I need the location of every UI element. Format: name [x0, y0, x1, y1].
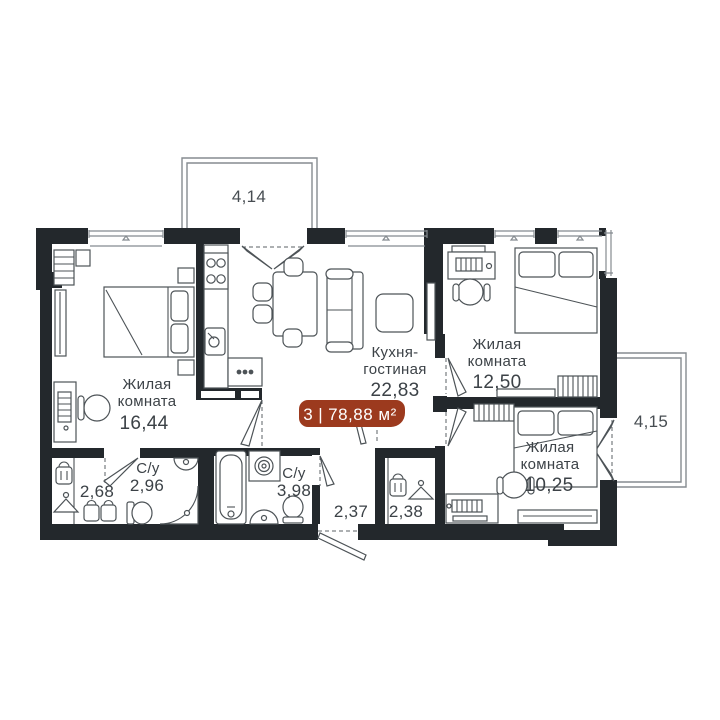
chair	[457, 279, 483, 305]
sofa-armrest	[326, 269, 353, 279]
basket	[56, 467, 72, 484]
bedroom2-area: 12,50	[472, 372, 521, 393]
dot	[237, 370, 241, 374]
burner	[217, 259, 225, 267]
badge-room-count: 3	[303, 405, 313, 424]
basket	[101, 505, 116, 521]
dining-table	[273, 272, 317, 336]
pillow	[171, 291, 188, 321]
chair-arm	[484, 284, 490, 301]
monitor	[452, 246, 485, 252]
shelf-rack	[54, 250, 74, 285]
bedroom2-name-2: комната	[468, 353, 527, 370]
bedroom1-area: 16,44	[119, 413, 168, 434]
pillow	[519, 252, 555, 277]
chair	[84, 395, 110, 421]
toilet-bowl	[132, 502, 152, 524]
bedroom3-name-1: Жилая	[526, 439, 575, 456]
bath1-area: 2,96	[130, 476, 164, 495]
bathtub-inner	[220, 455, 242, 519]
burner	[217, 275, 225, 283]
chair-arm	[497, 477, 503, 494]
balcony-right-area: 4,15	[634, 412, 668, 431]
stub-inset-1	[201, 391, 235, 398]
window-bedroom2	[495, 230, 534, 240]
wardrobe-area: 2,68	[80, 482, 114, 501]
bedroom3-area: 10,25	[524, 475, 573, 496]
bedroom2-furniture	[448, 246, 597, 397]
pillow	[559, 252, 593, 277]
sofa-armrest	[326, 342, 353, 352]
closet-area: 2,38	[389, 502, 423, 521]
ottoman	[376, 294, 413, 332]
pillow	[518, 411, 554, 435]
basket	[390, 479, 406, 496]
balcony-right-door-leaf-bottom	[596, 452, 614, 481]
badge-total-area: 78,88 м²	[328, 405, 397, 424]
bedroom1-name-1: Жилая	[123, 376, 172, 393]
keyboard	[456, 258, 482, 271]
nightstand	[178, 360, 194, 375]
mouse	[64, 426, 68, 430]
faucet	[184, 460, 189, 465]
area-badge: 3|78,88 м²	[299, 400, 405, 427]
dining-chair	[253, 283, 272, 301]
bedroom3-name-2: комната	[521, 456, 580, 473]
hallway-area: 2,37	[334, 502, 368, 521]
chair	[501, 472, 527, 498]
floor-plan-canvas: Жилая комната 16,44 Кухня- гостиная 22,8…	[0, 0, 720, 720]
bath1-name: С/у	[136, 460, 160, 477]
stub-inset-2	[241, 391, 259, 398]
dining-chair	[284, 258, 303, 276]
burner	[207, 275, 215, 283]
hanger-hook	[419, 481, 424, 486]
hanger-icon	[409, 487, 433, 499]
basket	[84, 505, 99, 521]
bedroom1-door-leaf	[241, 400, 262, 446]
bath2-door-leaf	[320, 456, 334, 486]
dining-chair	[253, 305, 272, 323]
window-kitchen	[346, 230, 427, 246]
bathtub-drain	[228, 511, 234, 517]
floor-plan-svg: Жилая комната 16,44 Кухня- гостиная 22,8…	[0, 0, 720, 720]
area-badge-label: 3|78,88 м²	[303, 405, 397, 424]
side-unit	[76, 250, 90, 266]
badge-divider: |	[318, 405, 323, 424]
chair-arm	[453, 284, 459, 301]
balcony-top-door-leaf-left	[242, 246, 272, 269]
tv-stand	[427, 283, 435, 340]
kitchen-name-1: Кухня-	[372, 344, 419, 361]
dot	[249, 370, 253, 374]
mouse	[447, 504, 451, 508]
mouse	[487, 264, 492, 269]
dining-chair	[283, 329, 302, 347]
bath2-name: С/у	[282, 465, 306, 482]
bedroom2-door-leaf	[448, 358, 466, 396]
stove	[204, 253, 228, 289]
kitchen-name-2: гостиная	[363, 361, 426, 378]
chair-back	[78, 396, 84, 420]
bedroom2-name-1: Жилая	[473, 336, 522, 353]
bath2-area: 3,98	[277, 481, 311, 500]
toilet-tank	[283, 517, 303, 523]
washing-machine	[249, 451, 280, 481]
burner	[207, 259, 215, 267]
balcony-top-area: 4,14	[232, 187, 266, 206]
balcony-right-door-leaf-top	[596, 420, 614, 450]
hanger-hook	[64, 493, 69, 498]
pillow	[558, 411, 593, 435]
nightstand	[178, 268, 194, 283]
faucet	[262, 516, 267, 521]
window-bedroom1	[89, 230, 163, 246]
monitor	[453, 516, 487, 521]
kitchen-area: 22,83	[370, 380, 419, 401]
bedroom1-name-2: комната	[118, 393, 177, 410]
keyboard	[58, 392, 71, 422]
shower-drain	[185, 511, 190, 516]
bedroom3-door-leaf	[448, 408, 466, 446]
pillow	[171, 324, 188, 353]
dot	[243, 370, 247, 374]
shower-tray	[160, 486, 198, 524]
